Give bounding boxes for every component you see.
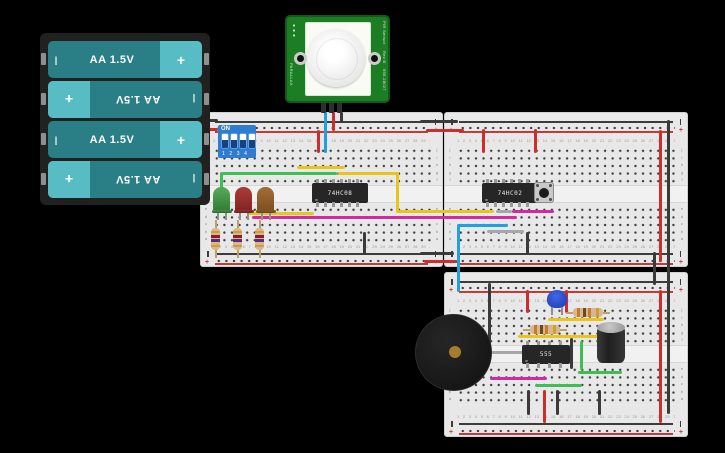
rail-plus-label: + <box>679 288 683 294</box>
battery-cell-2[interactable]: | AA 1.5V + <box>48 81 202 118</box>
wire-magenta-1[interactable] <box>512 210 554 213</box>
ic-74hc08[interactable]: 74HC08 <box>312 179 368 207</box>
battery-minus-label: | <box>48 135 64 145</box>
rail-minus-tick <box>680 279 682 285</box>
pir-sensor[interactable]: PIR Sensor Rev B 555-28027 PARALLAX <box>285 15 390 103</box>
circuit-canvas: + + 1 2 3 4 5 6 7 8 9 10 11 12 13 14 15 … <box>0 0 725 453</box>
rail-plus-label: + <box>449 430 453 436</box>
led-red[interactable] <box>235 187 252 212</box>
capacitor-leg <box>561 307 563 315</box>
wire-green-3[interactable] <box>578 371 622 374</box>
battery-contact <box>41 93 46 105</box>
battery-minus-label: | <box>48 55 64 65</box>
rail-line-positive <box>459 263 673 265</box>
dip-toggle-4[interactable] <box>249 134 255 148</box>
wire-green-4[interactable] <box>535 384 582 387</box>
rail-plus-label: + <box>679 260 683 266</box>
ic-label: 555 <box>522 345 570 364</box>
wire-black-rail-right[interactable] <box>667 120 670 414</box>
wire-gray-2[interactable] <box>487 230 524 233</box>
wire-cyan-1[interactable] <box>457 224 508 227</box>
wire-black-5[interactable] <box>527 390 530 415</box>
column-numbers: 1 2 3 4 5 6 7 8 9 10 11 12 13 14 15 16 1… <box>457 244 675 250</box>
rail-plus-label: + <box>679 128 683 134</box>
rail-minus-tick <box>207 251 209 257</box>
battery-pack[interactable]: | AA 1.5V + | AA 1.5V + | AA 1.5V + | AA… <box>40 33 210 205</box>
dip-on-label: ON <box>221 126 230 132</box>
ic-label: 74HC02 <box>482 183 538 203</box>
resistor-4[interactable] <box>573 308 603 317</box>
jumper-bottom-black[interactable] <box>420 252 454 255</box>
wire-yellow-4[interactable] <box>396 210 494 213</box>
capacitor-electrolytic[interactable] <box>597 325 625 363</box>
pushbutton-leg <box>549 184 552 187</box>
battery-contact <box>204 133 209 145</box>
battery-plus-label: + <box>48 81 90 118</box>
ic-pin1-dot <box>485 199 488 202</box>
wire-black-6[interactable] <box>556 390 559 415</box>
wire-magenta-3[interactable] <box>490 377 547 380</box>
rail-line-negative <box>459 121 673 123</box>
piezo-buzzer[interactable] <box>415 314 492 391</box>
buzzer-center-hole <box>449 346 461 358</box>
dip-toggle-3[interactable] <box>240 134 246 148</box>
dip-toggle-1[interactable] <box>222 134 228 148</box>
ic-pin1-dot <box>315 199 318 202</box>
wire-pir-power[interactable] <box>332 112 335 131</box>
rail-minus-tick <box>680 119 682 125</box>
wire-black-7[interactable] <box>598 390 601 415</box>
wire-black-1[interactable] <box>526 232 529 254</box>
pushbutton-cap[interactable] <box>539 188 549 198</box>
wire-green-2[interactable] <box>580 341 583 370</box>
pir-part-number: 555-28027 <box>382 69 387 91</box>
resistor-3[interactable] <box>255 228 264 250</box>
rail-line-positive <box>459 433 673 435</box>
wire-yellow-3[interactable] <box>396 172 399 212</box>
rail-holes <box>457 124 675 130</box>
rail-line-negative <box>459 253 673 255</box>
battery-cell-4[interactable]: | AA 1.5V + <box>48 161 202 198</box>
resistor-5[interactable] <box>530 325 560 334</box>
wire-red-rail-right-2[interactable] <box>659 290 662 423</box>
wire-red-2[interactable] <box>482 129 485 153</box>
battery-minus-label: | <box>186 95 202 105</box>
battery-cell-3[interactable]: | AA 1.5V + <box>48 121 202 158</box>
ic-74hc02[interactable]: 74HC02 <box>482 179 538 207</box>
wire-red-rail-tap[interactable] <box>317 130 320 153</box>
jumper-top-black[interactable] <box>420 120 458 123</box>
battery-contact <box>204 53 209 65</box>
wire-black-2[interactable] <box>363 232 366 254</box>
pir-rev-label: Rev B <box>382 51 387 63</box>
ic-pins <box>526 363 566 368</box>
rail-line-negative <box>459 423 673 425</box>
battery-plus-label: + <box>160 41 202 78</box>
wire-yellow-7[interactable] <box>518 335 609 338</box>
capacitor-blue[interactable] <box>547 290 567 308</box>
pir-lens-dome <box>307 29 365 87</box>
column-numbers: 1 2 3 4 5 6 7 8 9 10 11 12 13 14 15 16 1… <box>457 138 675 144</box>
rail-line-positive <box>215 263 428 265</box>
battery-plus-label: + <box>48 161 90 198</box>
row-letters: e d c b a <box>203 205 209 243</box>
jumper-mid-black[interactable] <box>653 252 656 285</box>
column-numbers: 1 2 3 4 5 6 7 8 9 10 11 12 13 14 15 16 1… <box>213 244 430 250</box>
led-green[interactable] <box>213 187 230 212</box>
row-letters: j i h g f <box>679 306 685 344</box>
battery-contact <box>41 53 46 65</box>
wire-pir-signal[interactable] <box>324 112 327 153</box>
rail-plus-label: + <box>679 430 683 436</box>
rail-plus-label: + <box>449 288 453 294</box>
wire-gray-1[interactable] <box>496 210 512 213</box>
rail-line-negative <box>215 121 428 123</box>
pir-name-label: PIR Sensor <box>382 21 387 44</box>
column-numbers: 1 2 3 4 5 6 7 8 9 10 11 12 13 14 15 16 1… <box>457 414 675 420</box>
wire-black-4[interactable] <box>570 338 573 369</box>
rail-line-negative <box>215 253 428 255</box>
battery-contact <box>204 173 209 185</box>
resistor-1[interactable] <box>211 228 220 250</box>
row-letters: j i h g f <box>447 146 453 184</box>
wire-red-6[interactable] <box>543 390 546 423</box>
pir-jumper-pins <box>292 23 296 39</box>
pir-mount-hole <box>294 52 307 65</box>
led-orange[interactable] <box>257 187 274 212</box>
pir-brand-label: PARALLAX <box>289 63 294 86</box>
rail-plus-label: + <box>205 260 209 266</box>
ic-pins <box>486 202 534 207</box>
dip-position-labels: 1 2 3 4 <box>222 151 247 157</box>
battery-contact <box>41 133 46 145</box>
pushbutton-leg <box>536 184 539 187</box>
row-letters: e d c b a <box>679 205 685 243</box>
row-letters: e d c b a <box>679 365 685 403</box>
rail-minus-tick <box>680 251 682 257</box>
pushbutton-leg <box>536 198 539 201</box>
rail-line-negative <box>459 281 673 283</box>
battery-contact <box>204 93 209 105</box>
battery-label: AA 1.5V <box>64 54 160 66</box>
rail-line-positive <box>459 131 673 133</box>
dip-switch[interactable]: ON 1 2 3 4 <box>218 125 256 158</box>
wire-yellow-6[interactable] <box>548 318 604 321</box>
wire-magenta-2[interactable] <box>252 216 517 219</box>
ic-pins <box>316 202 364 207</box>
pushbutton[interactable] <box>534 182 554 203</box>
battery-contact <box>41 173 46 185</box>
jumper-top-red[interactable] <box>426 129 464 132</box>
capacitor-leg <box>551 307 553 315</box>
pushbutton-leg <box>549 198 552 201</box>
wire-red-rail-right[interactable] <box>659 130 662 262</box>
wire-yellow-2[interactable] <box>338 172 399 175</box>
wire-green-1[interactable] <box>222 172 337 175</box>
wire-red-4[interactable] <box>526 290 529 313</box>
wire-red-3[interactable] <box>534 129 537 153</box>
battery-plus-label: + <box>160 121 202 158</box>
dip-toggle-2[interactable] <box>231 134 237 148</box>
ic-555-timer[interactable]: 555 <box>522 341 570 368</box>
row-letters: j i h g f <box>434 146 440 184</box>
row-letters: j i h g f <box>679 146 685 184</box>
battery-cell-1[interactable]: | AA 1.5V + <box>48 41 202 78</box>
battery-label: AA 1.5V <box>64 134 160 146</box>
wire-cyan-2[interactable] <box>457 226 460 292</box>
rail-minus-tick <box>451 421 453 427</box>
ic-label: 74HC08 <box>312 183 368 203</box>
rail-minus-tick <box>680 421 682 427</box>
battery-label: AA 1.5V <box>90 94 186 106</box>
wire-pir-ground[interactable] <box>340 112 343 123</box>
rail-minus-tick <box>451 279 453 285</box>
battery-label: AA 1.5V <box>90 174 186 186</box>
resistor-2[interactable] <box>233 228 242 250</box>
pir-mount-hole <box>368 52 381 65</box>
jumper-bottom-red[interactable] <box>424 260 458 263</box>
breadboard-right[interactable]: + + 1 2 3 4 5 6 7 8 9 10 11 12 13 14 15 … <box>444 112 688 267</box>
ic-pin1-dot <box>525 360 528 363</box>
wire-yellow-1[interactable] <box>297 166 345 169</box>
battery-minus-label: | <box>186 175 202 185</box>
